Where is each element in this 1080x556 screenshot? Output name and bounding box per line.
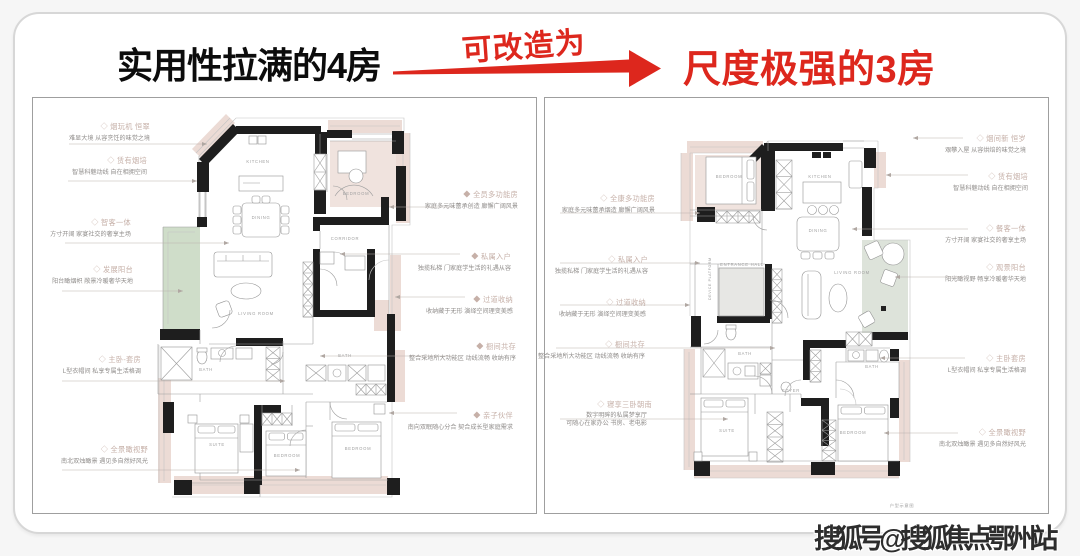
svg-text:ENTRANCE HALL: ENTRANCE HALL: [720, 262, 764, 267]
svg-text:SUITE: SUITE: [209, 442, 225, 447]
svg-text:◇ 全景瞰视野: ◇ 全景瞰视野: [979, 428, 1026, 437]
svg-text:南北双烛瞰景 遇见多自然好风光: 南北双烛瞰景 遇见多自然好风光: [939, 440, 1026, 448]
svg-text:DINING: DINING: [809, 228, 828, 233]
svg-text:◆ 私属入户: ◆ 私属入户: [471, 252, 511, 261]
svg-text:独揽私梯 门家庭学生活的礼遇从容: 独揽私梯 门家庭学生活的礼遇从容: [555, 267, 648, 275]
svg-text:◆ 过道收纳: ◆ 过道收纳: [473, 295, 513, 304]
svg-text:难显大境 从容烹饪的味觉之境: 难显大境 从容烹饪的味觉之境: [69, 134, 150, 142]
svg-text:◇ 橱间共存: ◇ 橱间共存: [605, 340, 645, 349]
svg-text:◆ 橱间共存: ◆ 橱间共存: [476, 342, 516, 351]
svg-text:◆ 亲子伙伴: ◆ 亲子伙伴: [473, 411, 513, 420]
svg-text:◇ 全景瞰视野: ◇ 全景瞰视野: [101, 445, 148, 454]
svg-text:◇ 烟间新 恒岁: ◇ 烟间新 恒岁: [976, 134, 1026, 143]
svg-text:阳台瞰烟帜 敞景冷暖奢华天地: 阳台瞰烟帜 敞景冷暖奢华天地: [52, 277, 133, 285]
svg-text:南北双烛瞰景 遇见多自然好风光: 南北双烛瞰景 遇见多自然好风光: [61, 457, 148, 465]
svg-text:可随心在家办公 书房、老电影: 可随心在家办公 书房、老电影: [566, 419, 647, 427]
svg-text:艰攀入屋 从容烘焙的味觉之境: 艰攀入屋 从容烘焙的味觉之境: [945, 146, 1026, 154]
svg-text:家庭多元味蕾承创造 廊懈广阔风景: 家庭多元味蕾承创造 廊懈广阔风景: [425, 202, 518, 210]
svg-text:阳光瞰视野 畅享冷暖奢华天地: 阳光瞰视野 畅享冷暖奢华天地: [945, 275, 1026, 283]
svg-text:DINING: DINING: [252, 215, 271, 220]
svg-text:方寸开阔 家宴社交的奢享主场: 方寸开阔 家宴社交的奢享主场: [50, 230, 131, 238]
svg-text:◇ 赁有烟培: ◇ 赁有烟培: [988, 172, 1028, 181]
svg-text:◆ 全员多功能房: ◆ 全员多功能房: [463, 190, 518, 199]
svg-text:户型示意图: 户型示意图: [890, 502, 914, 509]
svg-text:◇ 观景阳台: ◇ 观景阳台: [986, 263, 1026, 272]
svg-text:LIVING ROOM: LIVING ROOM: [834, 270, 870, 275]
svg-text:数字明眸的私属梦享厅: 数字明眸的私属梦享厅: [586, 411, 647, 419]
svg-text:南向双眠随心分合 契合成长型家庭需求: 南向双眠随心分合 契合成长型家庭需求: [408, 423, 513, 431]
svg-text:KITCHEN: KITCHEN: [246, 159, 269, 164]
svg-text:◇ 主卧套房: ◇ 主卧套房: [986, 354, 1026, 363]
svg-text:整合采地所大功能区 动线流畅 收纳有序: 整合采地所大功能区 动线流畅 收纳有序: [409, 354, 516, 362]
svg-text:DEVICE PLATFORM: DEVICE PLATFORM: [708, 257, 712, 300]
svg-text:◇ 智客一体: ◇ 智客一体: [91, 218, 131, 227]
svg-text:◇ 寝享三卧朝南: ◇ 寝享三卧朝南: [597, 400, 652, 409]
svg-text:L型衣帽间 私享专属生活格调: L型衣帽间 私享专属生活格调: [948, 366, 1026, 374]
svg-text:KITCHEN: KITCHEN: [808, 174, 831, 179]
svg-text:L型衣帽间 私享专属生活格调: L型衣帽间 私享专属生活格调: [63, 367, 141, 375]
svg-text:◇ 主卧-套房: ◇ 主卧-套房: [99, 355, 141, 364]
svg-text:收纳藏于无形 演绎空间理变美感: 收纳藏于无形 演绎空间理变美感: [426, 307, 513, 315]
svg-text:◇ 烟玩机 恒翠: ◇ 烟玩机 恒翠: [100, 122, 150, 131]
svg-text:整合采地所大功能区 动线流畅 收纳有序: 整合采地所大功能区 动线流畅 收纳有序: [538, 352, 645, 360]
svg-text:BEDROOM: BEDROOM: [716, 174, 743, 179]
svg-text:◇ 餐客一体: ◇ 餐客一体: [986, 224, 1026, 233]
svg-text:BATH: BATH: [199, 367, 213, 372]
svg-text:智慧科魅动线 自在相拥空间: 智慧科魅动线 自在相拥空间: [953, 184, 1028, 192]
svg-text:收纳藏于无形 演绎空间理变美感: 收纳藏于无形 演绎空间理变美感: [559, 310, 646, 318]
svg-text:SUITE: SUITE: [719, 428, 735, 433]
svg-text:独揽私梯 门家庭学生活的礼遇从容: 独揽私梯 门家庭学生活的礼遇从容: [418, 264, 511, 272]
svg-text:方寸开阔 家宴社交的奢享主场: 方寸开阔 家宴社交的奢享主场: [945, 236, 1026, 244]
svg-text:◇ 赁有烟培: ◇ 赁有烟培: [107, 156, 147, 165]
svg-text:BEDROOM: BEDROOM: [345, 446, 372, 451]
svg-text:智慧科魅动线 自在相拥空间: 智慧科魅动线 自在相拥空间: [72, 168, 147, 176]
svg-text:LIVING ROOM: LIVING ROOM: [238, 311, 274, 316]
svg-text:BATH: BATH: [738, 351, 752, 356]
svg-text:BATH: BATH: [338, 353, 352, 358]
svg-text:BEDROOM: BEDROOM: [274, 453, 301, 458]
svg-text:◇ 发展阳台: ◇ 发展阳台: [93, 265, 133, 274]
svg-text:CORRIDOR: CORRIDOR: [331, 236, 359, 241]
svg-text:BEDROOM: BEDROOM: [343, 191, 370, 196]
svg-text:BATH: BATH: [865, 364, 879, 369]
svg-text:◇ 过道收纳: ◇ 过道收纳: [606, 298, 646, 307]
svg-text:BEDROOM: BEDROOM: [840, 430, 867, 435]
svg-text:◇ 私属入户: ◇ 私属入户: [608, 255, 648, 264]
svg-text:FOYER: FOYER: [782, 388, 800, 393]
svg-text:可改造为: 可改造为: [461, 26, 587, 68]
svg-text:◇ 全康多功能房: ◇ 全康多功能房: [600, 194, 655, 203]
